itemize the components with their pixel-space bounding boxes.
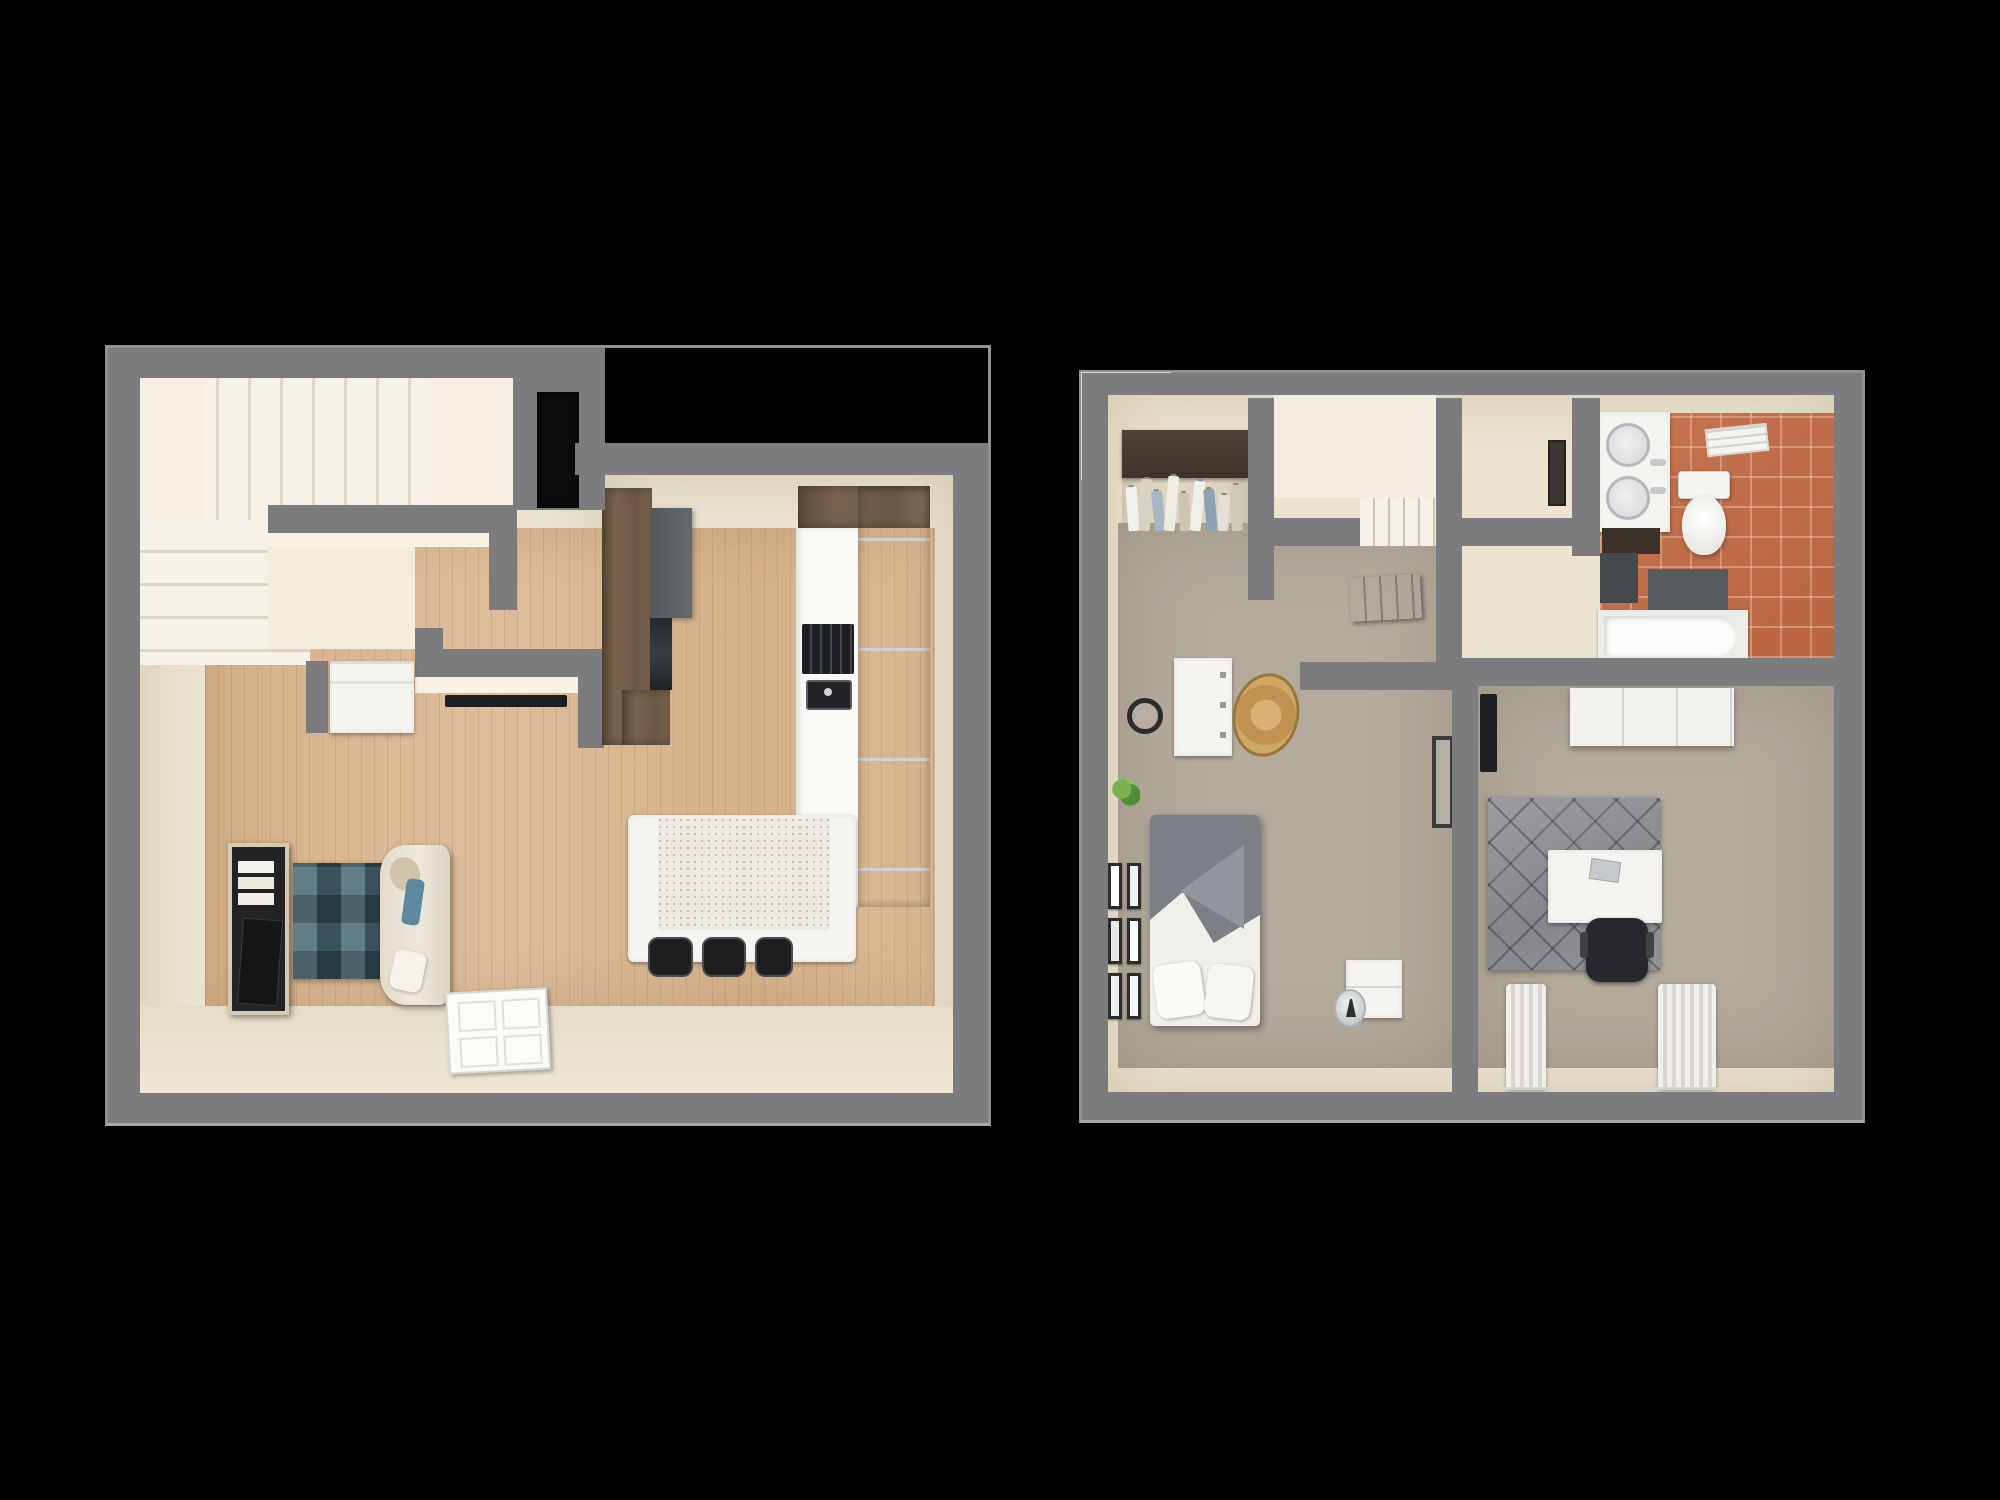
pillow [1203, 963, 1254, 1022]
open-hall-door [1349, 574, 1422, 622]
repeated-item [1127, 918, 1141, 964]
repeated-item [1230, 485, 1243, 531]
door-panel-inset [459, 1036, 499, 1068]
sink-faucet [824, 688, 832, 696]
toilet-bowl [1682, 495, 1726, 555]
wardrobe [1570, 688, 1734, 746]
pillow-cream [388, 948, 428, 994]
stairwell-floor [1274, 395, 1436, 498]
pooled-curtain-right [1658, 984, 1716, 1090]
repeated-item [1108, 973, 1122, 1019]
round-wall-mirror [1127, 698, 1163, 734]
tv-stand [228, 843, 289, 1015]
stairwell-bottom-wall [1274, 518, 1360, 546]
open-entry-door-panel [445, 987, 551, 1074]
cooktop [802, 624, 854, 674]
closet-right-wall [1248, 398, 1274, 600]
inner-wall-d-face [415, 677, 604, 693]
glass-vase [1334, 989, 1366, 1027]
island-stone-top [658, 818, 830, 930]
outer-wall-top-right [575, 443, 988, 475]
second-floor-plan [1082, 373, 1862, 1120]
first-floor-plan [108, 348, 988, 1123]
bathroom-left-wall [1572, 398, 1600, 556]
descending-stairs [1360, 498, 1436, 546]
repeated-item [702, 937, 746, 977]
vanity-base-cabinet [1602, 528, 1660, 554]
bedroom-primary-top-wall [1300, 662, 1436, 690]
repeated-item [1189, 481, 1205, 532]
repeated-item [1203, 489, 1218, 532]
central-vertical-wall [1436, 398, 1462, 690]
utility-wall-stub [306, 661, 328, 733]
office-chair [1586, 918, 1648, 982]
stair-landing-corner [140, 378, 205, 520]
dresser [1174, 658, 1232, 756]
curtain-rod-line [1502, 1087, 1720, 1090]
flatscreen-tv [237, 918, 283, 1007]
living-room-rug [293, 863, 388, 979]
repeated-item [648, 937, 693, 977]
repeated-item [1108, 863, 1122, 909]
door-panel-inset [501, 998, 541, 1030]
stair-upper-flight [205, 378, 440, 520]
repeated-item [1127, 973, 1141, 1019]
inner-wall-a [268, 505, 517, 533]
repeated-item [1125, 487, 1139, 532]
book-stack [238, 861, 274, 873]
dresser-handles [1220, 672, 1226, 738]
nook-side-wall-face [268, 547, 415, 649]
outer-wall-left [108, 348, 140, 1123]
faucet [1650, 459, 1666, 466]
niche-bottom-wall [1462, 518, 1572, 546]
repeated-item [1139, 479, 1153, 532]
outer-wall-bottom [1082, 1092, 1862, 1120]
outer-wall-top [1082, 373, 1862, 395]
outer-wall-right [1834, 373, 1862, 1120]
bathtub [1598, 610, 1748, 662]
loveseat [380, 845, 450, 1005]
repeated-item [1217, 495, 1229, 531]
faucet [1650, 487, 1666, 494]
repeated-item [1127, 863, 1141, 909]
outer-wall-right [953, 443, 988, 1123]
island-bar-stools [648, 937, 808, 977]
bathroom-bottom-wall [1462, 658, 1834, 686]
inner-wall-d [415, 649, 604, 677]
door-panel-inset [457, 1000, 497, 1032]
chair-armrest [1580, 932, 1588, 958]
bedroom-divider-wall [1452, 662, 1478, 1092]
entry-door-black [537, 392, 579, 508]
floor-plan-canvas [0, 0, 2000, 1500]
washer-cabinet [330, 661, 414, 733]
pooled-curtain-left [1506, 984, 1546, 1090]
vanity-sink [1606, 423, 1650, 467]
kitchen-cabinet-run-right [858, 486, 930, 907]
bath-mat [1600, 553, 1638, 603]
laptop [1589, 858, 1622, 883]
hanging-clothes [1126, 476, 1248, 536]
chair-armrest [1646, 932, 1654, 958]
repeated-item [755, 937, 793, 977]
gallery-wall-frames [1108, 863, 1142, 1033]
office-wall-tv [1480, 694, 1497, 772]
bathtub-basin [1604, 616, 1736, 656]
kitchen-cabinet-small [622, 690, 670, 745]
inner-wall-a-face [268, 533, 517, 547]
wall-mounted-tv-strip [445, 695, 567, 707]
vanity-sink [1606, 476, 1650, 520]
pillow [1151, 960, 1206, 1020]
door-panel-inset [503, 1034, 543, 1066]
outer-wall-bottom [108, 1093, 988, 1123]
bed [1150, 815, 1260, 1026]
inner-wall-stub-c [415, 628, 443, 649]
leaning-mirror [1432, 736, 1454, 828]
inner-wall-e [578, 677, 604, 748]
potted-plant [1112, 778, 1140, 806]
closet-rod-shelf [1122, 430, 1248, 478]
repeated-item [1164, 476, 1180, 532]
kitchen-slate-cabinet [652, 508, 692, 618]
outer-wall-left [1082, 373, 1108, 1120]
inner-wall-b [489, 533, 517, 610]
repeated-item [1108, 918, 1122, 964]
built-in-oven [650, 618, 672, 690]
vase-branch [1346, 999, 1356, 1017]
hall-wall-frame [1548, 440, 1566, 506]
